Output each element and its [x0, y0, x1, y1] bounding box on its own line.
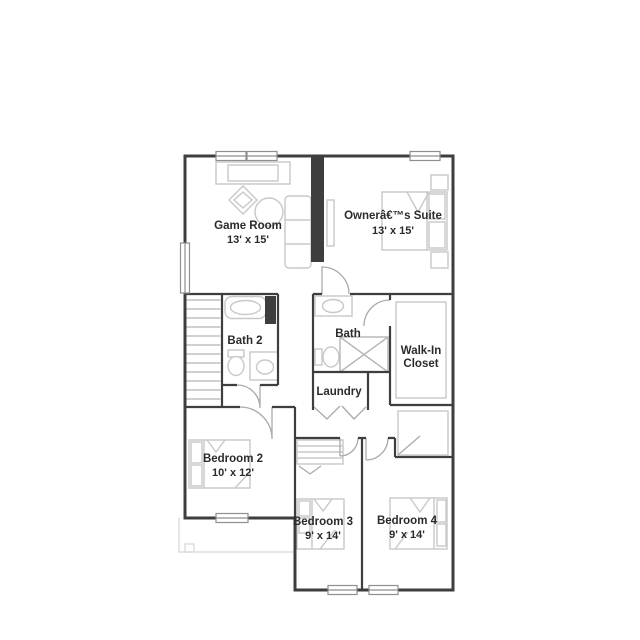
vanity-sink [250, 352, 278, 380]
door-arc [364, 300, 390, 326]
floor-plan-svg: Game Room 13' x 15' Ownerâ€™s Suite 13' … [0, 0, 640, 640]
closet-bifold-door [299, 466, 321, 474]
window [328, 586, 357, 595]
bedroom-3-dims: 9' x 14' [305, 530, 341, 542]
game-room-label: Game Room [214, 220, 282, 232]
window [181, 243, 190, 293]
sofa [285, 196, 311, 268]
bath-2-label: Bath 2 [227, 335, 262, 347]
nightstand [431, 252, 448, 268]
bedroom-2-label: Bedroom 2 [203, 453, 263, 465]
window [247, 152, 277, 161]
laundry-label: Laundry [316, 386, 362, 398]
door-arc [366, 438, 388, 460]
bath-label: Bath [335, 328, 361, 340]
door-arc [322, 267, 349, 294]
linen-wall [265, 296, 276, 324]
bedroom-4-label: Bedroom 4 [377, 515, 438, 527]
window [410, 152, 440, 161]
walk-in-closet-label-line2: Closet [403, 358, 438, 370]
game-room-dims: 13' x 15' [227, 234, 269, 246]
window [369, 586, 398, 595]
walk-in-closet-label-line1: Walk-In [401, 345, 441, 357]
chase-wall [311, 156, 324, 262]
shower [340, 337, 388, 372]
desk [216, 162, 290, 184]
bedroom-3-label: Bedroom 3 [293, 516, 353, 528]
chase-mirror [327, 200, 334, 246]
desk-chair [229, 186, 257, 214]
laundry-bifold-doors [314, 406, 366, 419]
staircase [187, 300, 221, 399]
owners-suite-dims: 13' x 15' [372, 225, 414, 237]
door-arc [240, 407, 272, 439]
vanity-sink [315, 296, 352, 316]
toilet [228, 350, 244, 376]
window [216, 152, 246, 161]
window [216, 514, 248, 523]
bedroom-2-dims: 10' x 12' [212, 467, 254, 479]
owners-suite-label: Ownerâ€™s Suite [344, 210, 442, 222]
closet-shelf [297, 440, 343, 464]
bedroom-4-dims: 9' x 14' [389, 529, 425, 541]
bathtub [225, 297, 266, 319]
floor-plan-page: Game Room 13' x 15' Ownerâ€™s Suite 13' … [0, 0, 640, 640]
door-arc [237, 385, 260, 408]
nightstand [431, 175, 448, 190]
toilet [315, 347, 339, 367]
